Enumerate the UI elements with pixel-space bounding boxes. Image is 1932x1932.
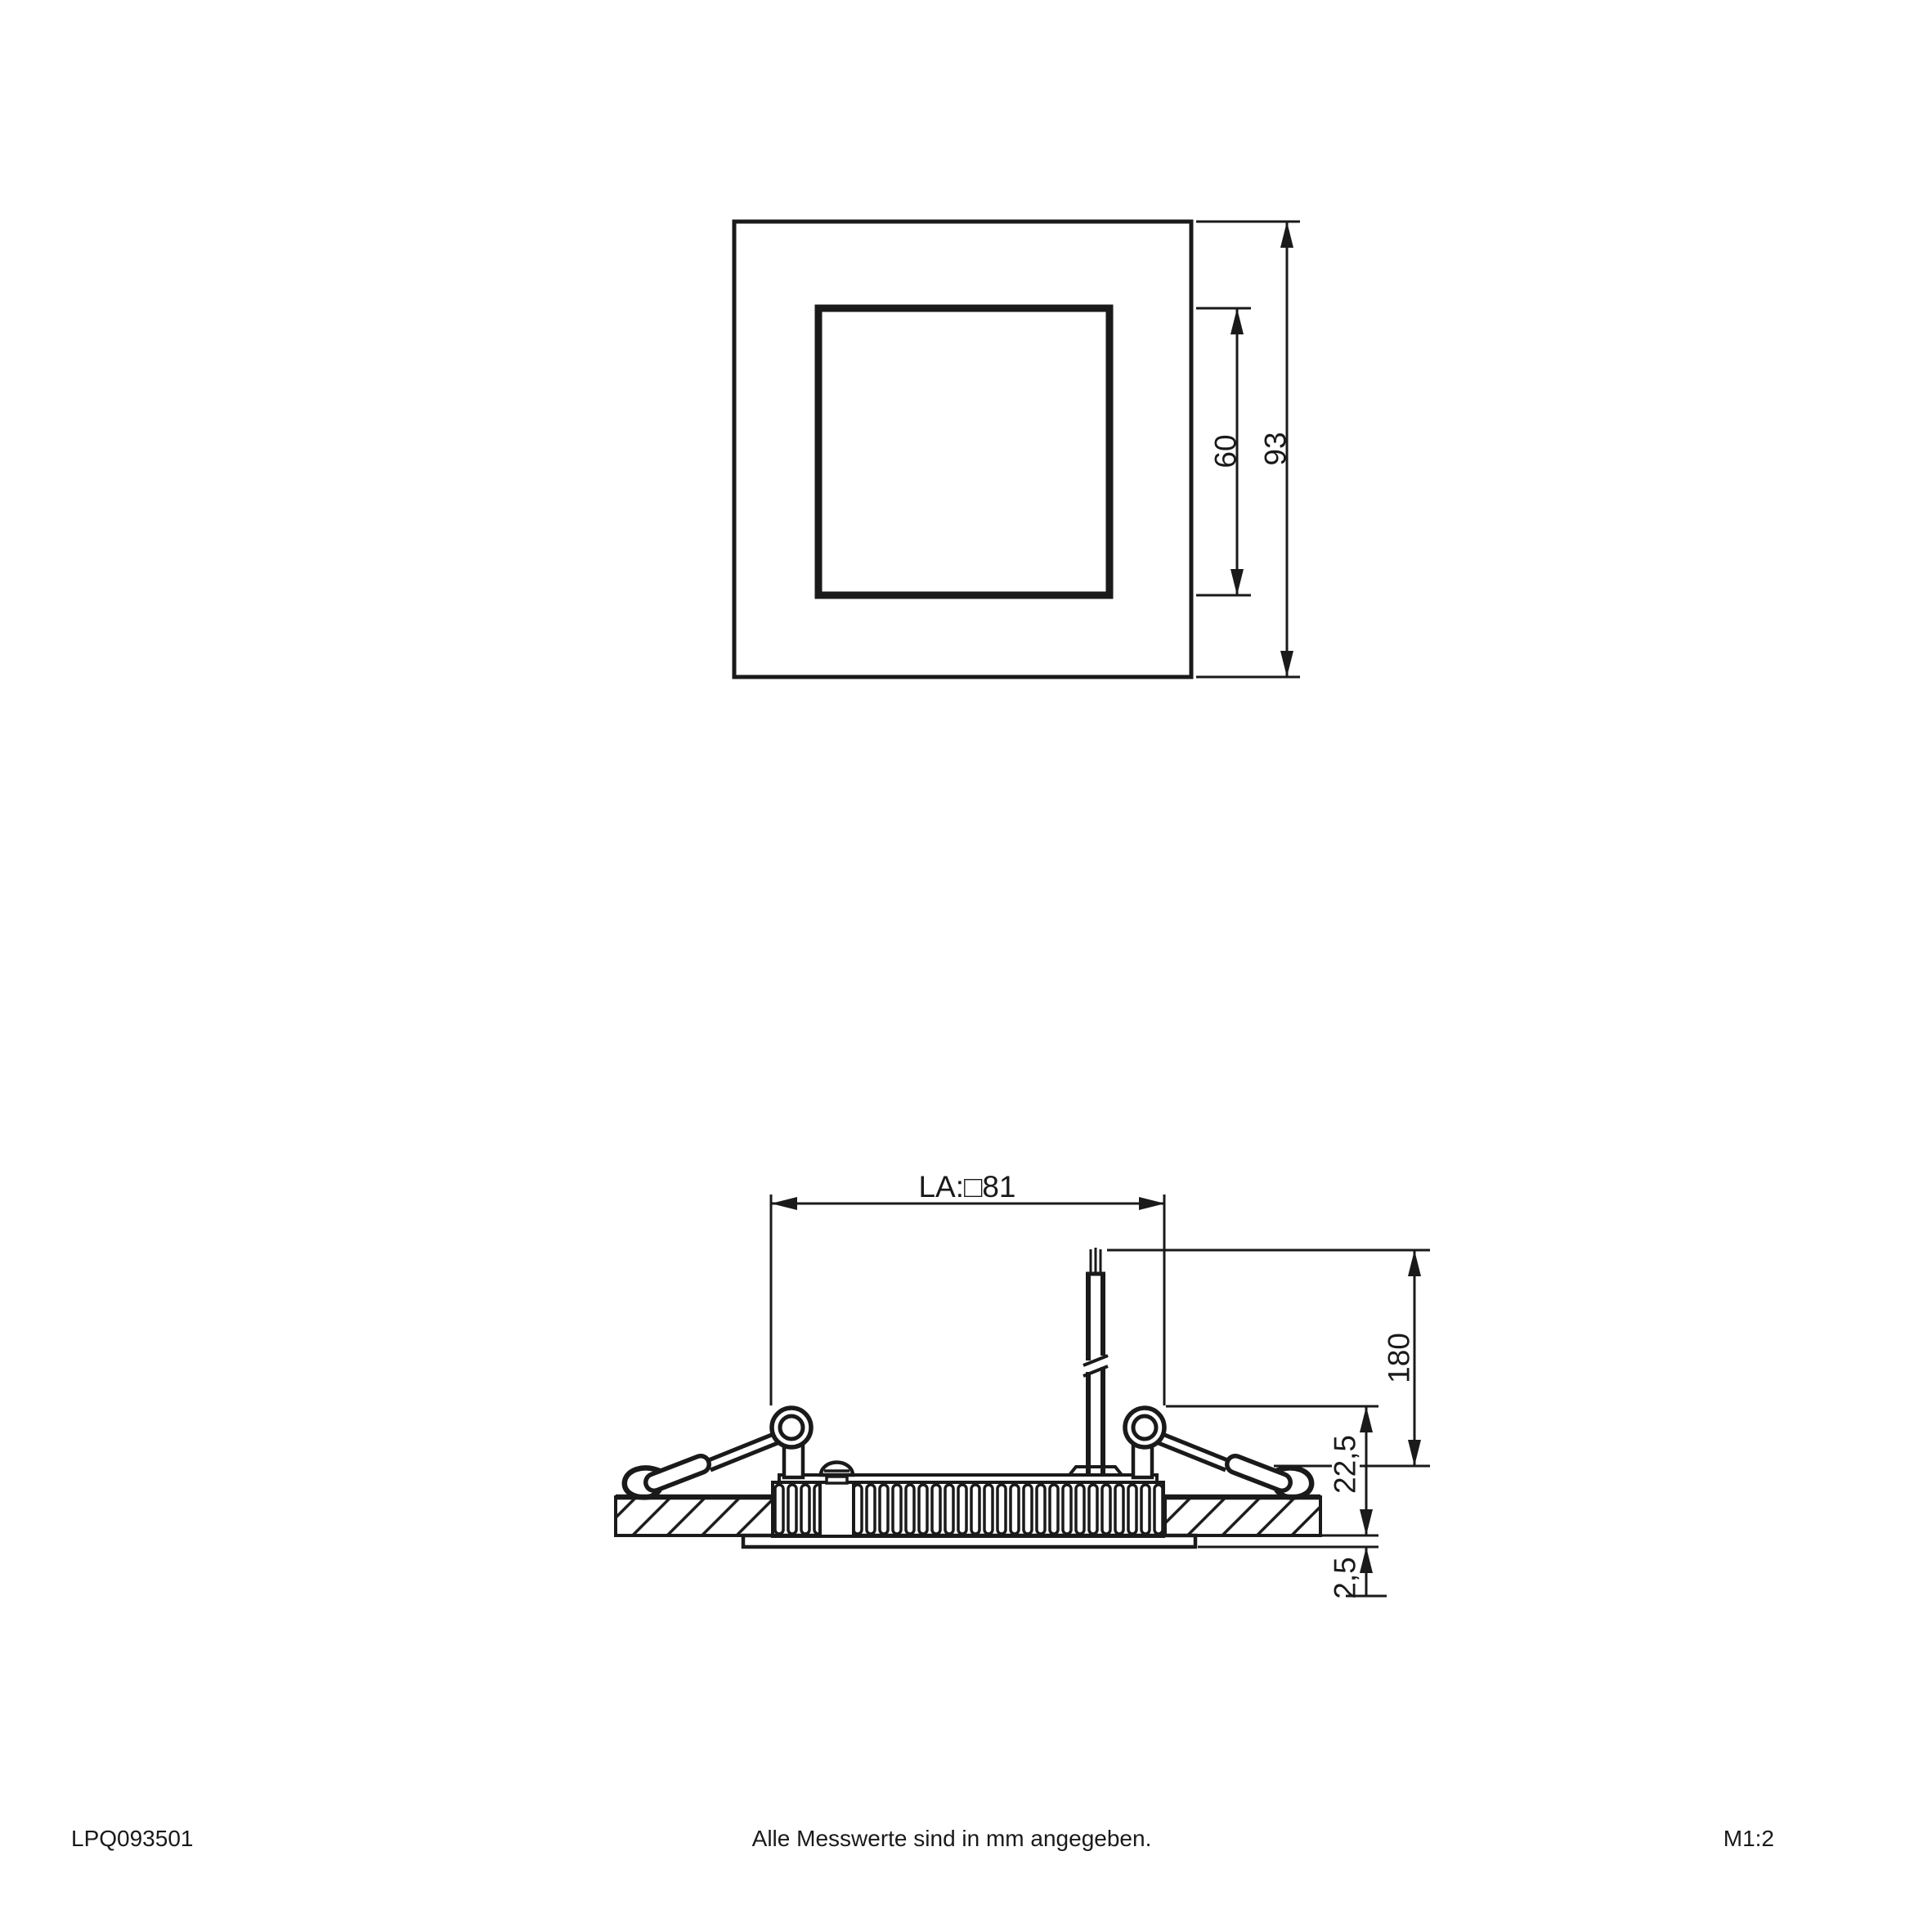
- arrow-180-top: [1408, 1250, 1421, 1276]
- panel-inner-square: [818, 308, 1109, 595]
- technical-drawing-page: 60 93: [0, 0, 1932, 1932]
- arrow-93-bottom: [1280, 651, 1293, 677]
- dim-label-outer-size: 93: [1259, 432, 1293, 465]
- arrow-cutout-left: [771, 1197, 797, 1210]
- cable-conductors: [1091, 1248, 1100, 1274]
- dim-label-rim-height: 2,5: [1329, 1557, 1362, 1598]
- arrow-cutout-right: [1139, 1197, 1165, 1210]
- arrow-93-top: [1280, 222, 1293, 248]
- dim-label-cable-length: 180: [1383, 1333, 1416, 1383]
- fixing-screw: [821, 1462, 853, 1483]
- ceiling-section-left: [616, 1497, 773, 1535]
- ceiling-section-right: [1165, 1497, 1320, 1535]
- top-view: 60 93: [734, 222, 1300, 677]
- arrow-225-top: [1360, 1406, 1373, 1432]
- screw-collar: [827, 1477, 847, 1483]
- side-view: LA:□81 180 22,5 2,5: [616, 1170, 1430, 1599]
- cable-sides: [1088, 1274, 1103, 1477]
- cable-entry-block: [1069, 1467, 1122, 1475]
- product-code: LPQ093501: [71, 1826, 193, 1851]
- screw-head: [821, 1462, 853, 1475]
- drawing-scale: M1:2: [1724, 1826, 1774, 1851]
- screw-boss: [820, 1482, 854, 1536]
- arrow-225-bottom: [1360, 1509, 1373, 1535]
- dim-label-cutout: LA:□81: [918, 1170, 1015, 1204]
- connection-cable: [1083, 1248, 1108, 1477]
- dimension-cutout: LA:□81: [771, 1170, 1165, 1405]
- dimension-rim-height: 2,5: [1198, 1547, 1387, 1599]
- dim-label-inner-size: 60: [1209, 434, 1243, 468]
- arrow-180-bottom: [1408, 1440, 1421, 1466]
- arrow-60-bottom: [1230, 569, 1244, 595]
- dim-label-recess-height: 22,5: [1329, 1435, 1362, 1494]
- cutout-dimension-lines: [771, 1195, 1165, 1405]
- arrow-60-top: [1230, 308, 1244, 334]
- measurement-note: Alle Messwerte sind in mm angegeben.: [752, 1826, 1152, 1851]
- drawing-canvas: 60 93: [0, 0, 1932, 1932]
- footer: LPQ093501 Alle Messwerte sind in mm ange…: [71, 1826, 1774, 1851]
